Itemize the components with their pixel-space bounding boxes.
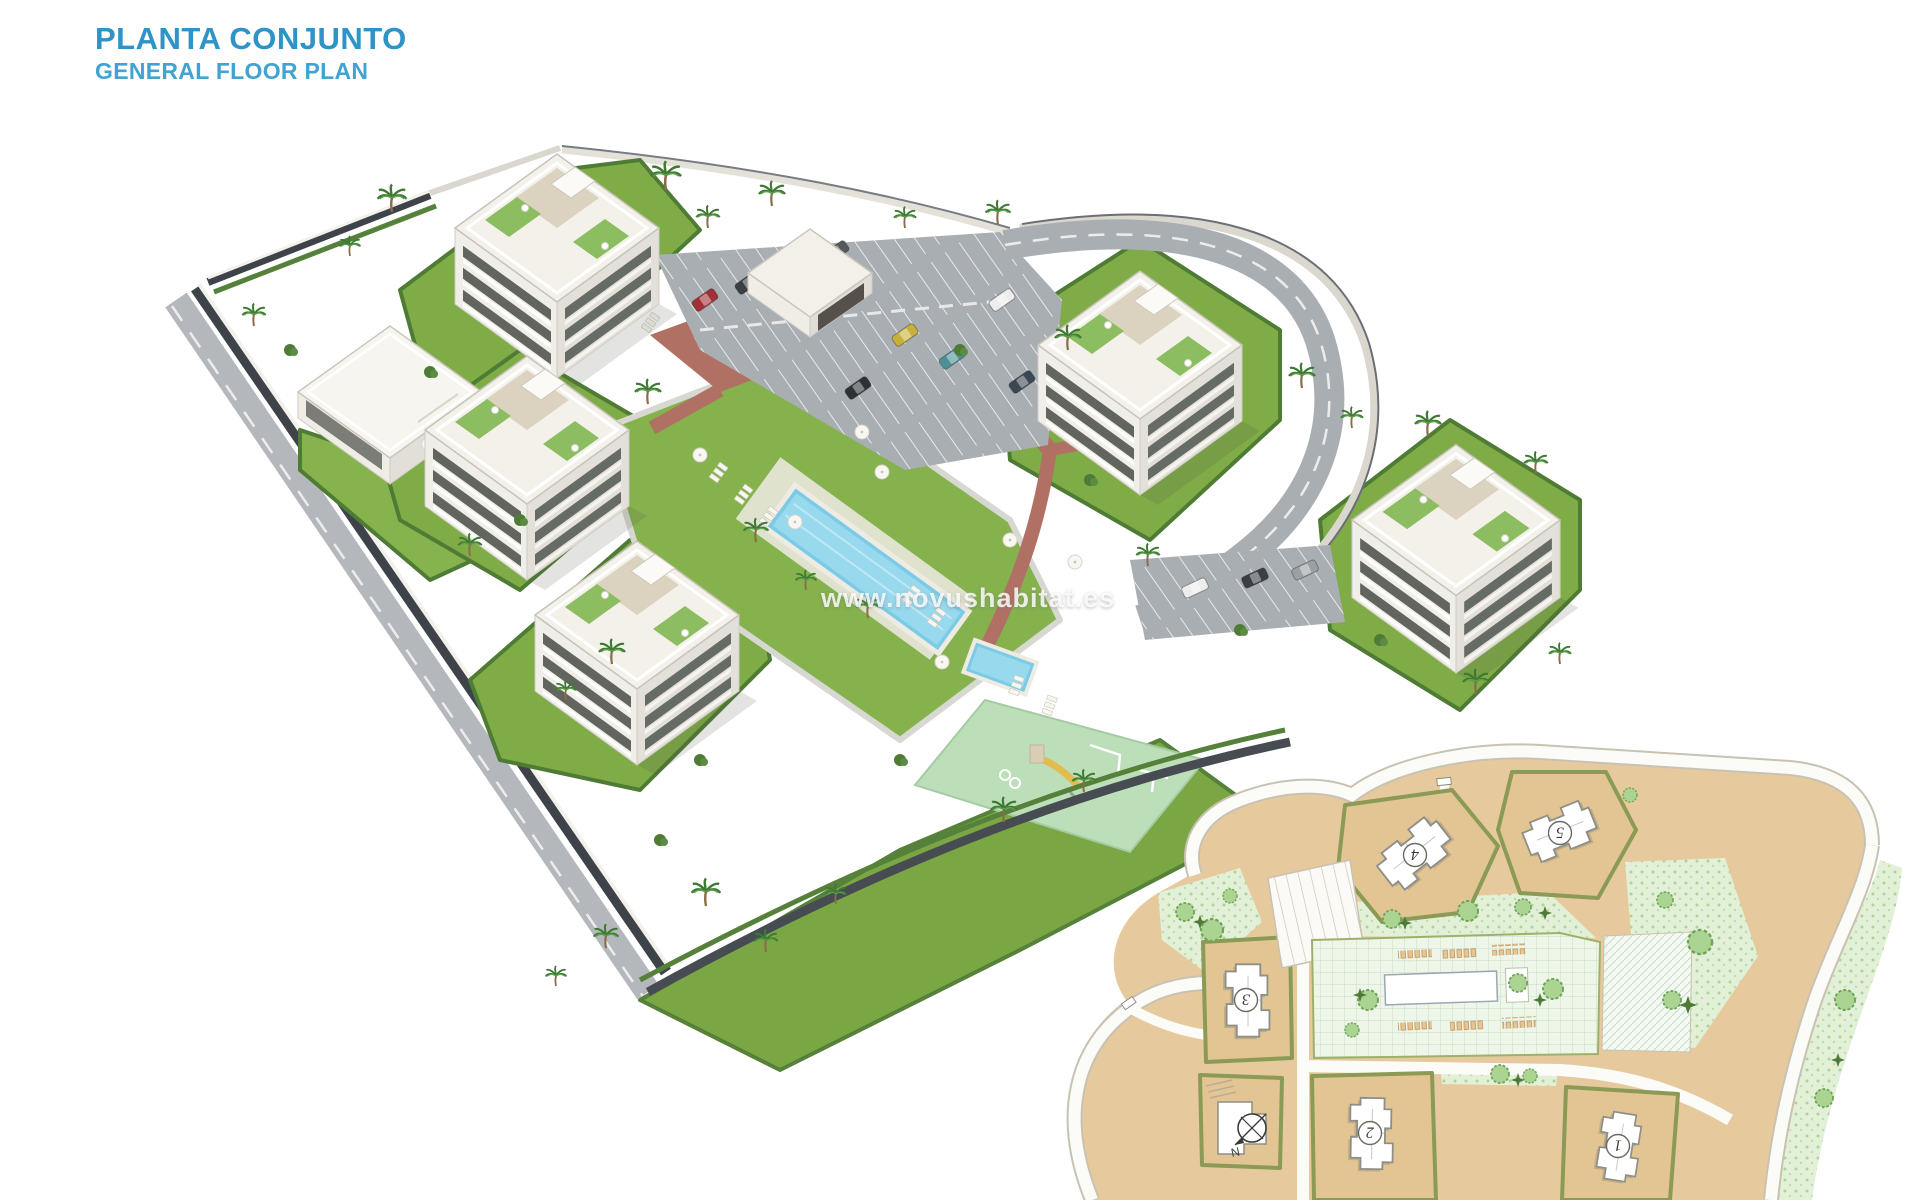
plan-building-label-5: 5: [1556, 824, 1564, 841]
watermark: www.novushabitat.es: [772, 583, 1164, 614]
plan-building-label-1: 1: [1614, 1137, 1622, 1154]
plan-pool: [1385, 971, 1498, 1005]
plan-building-label-3: 3: [1242, 991, 1251, 1008]
page-title: PLANTA CONJUNTO: [95, 22, 407, 56]
plan-plaza: [1602, 932, 1692, 1052]
page-subtitle: GENERAL FLOOR PLAN: [95, 58, 407, 84]
title-block: PLANTA CONJUNTO GENERAL FLOOR PLAN: [95, 22, 407, 84]
page-canvas: PLANTA CONJUNTO GENERAL FLOOR PLAN: [0, 0, 1920, 1200]
plan-building-label-2: 2: [1366, 1124, 1374, 1141]
plan-building-label-4: 4: [1411, 846, 1419, 863]
